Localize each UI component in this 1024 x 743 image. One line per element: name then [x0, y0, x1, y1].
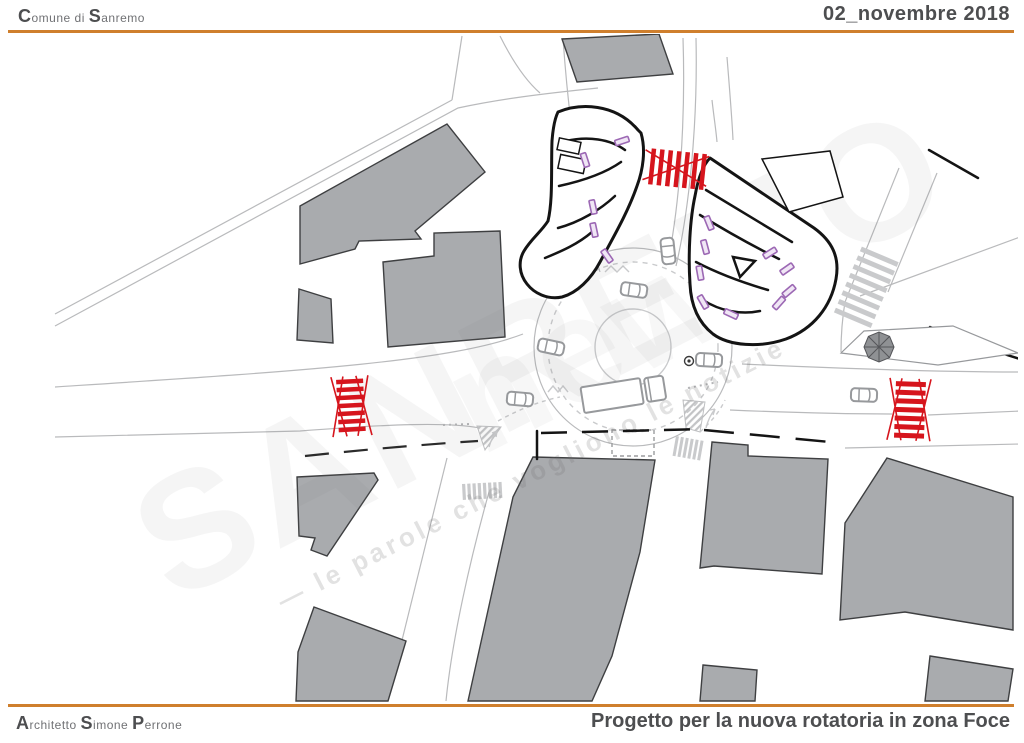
municipality-label: Comune di Sanremo [18, 6, 145, 27]
building-southeast-outer [840, 458, 1013, 630]
car [620, 282, 648, 298]
bottom-rule [8, 704, 1014, 707]
drawing-sheet: Comune di Sanremo 02_novembre 2018 [0, 0, 1024, 743]
building-top-center [562, 34, 673, 82]
zebra-gray-south [673, 436, 704, 461]
building-southwest-lower [296, 607, 406, 701]
building-west-small [297, 289, 333, 343]
car [660, 237, 676, 264]
architect-label: Architetto Simone Perrone [16, 713, 182, 734]
bollard [685, 357, 694, 366]
crosswalk-red-east [887, 378, 932, 441]
car [506, 391, 533, 406]
building-southeast-inner [700, 442, 828, 574]
date-label: 02_novembre 2018 [823, 3, 1010, 26]
site-plan-map: SANREMO news — le parole che vogliono le… [0, 0, 1024, 743]
municipality-initial: C [18, 6, 32, 26]
building-bottom-right [925, 656, 1013, 701]
tree-icon [864, 332, 894, 362]
project-title-label: Progetto per la nuova rotatoria in zona … [591, 710, 1010, 733]
car [696, 353, 723, 367]
building-bottom-center [700, 665, 757, 701]
car [851, 388, 877, 402]
top-rule [8, 30, 1014, 33]
